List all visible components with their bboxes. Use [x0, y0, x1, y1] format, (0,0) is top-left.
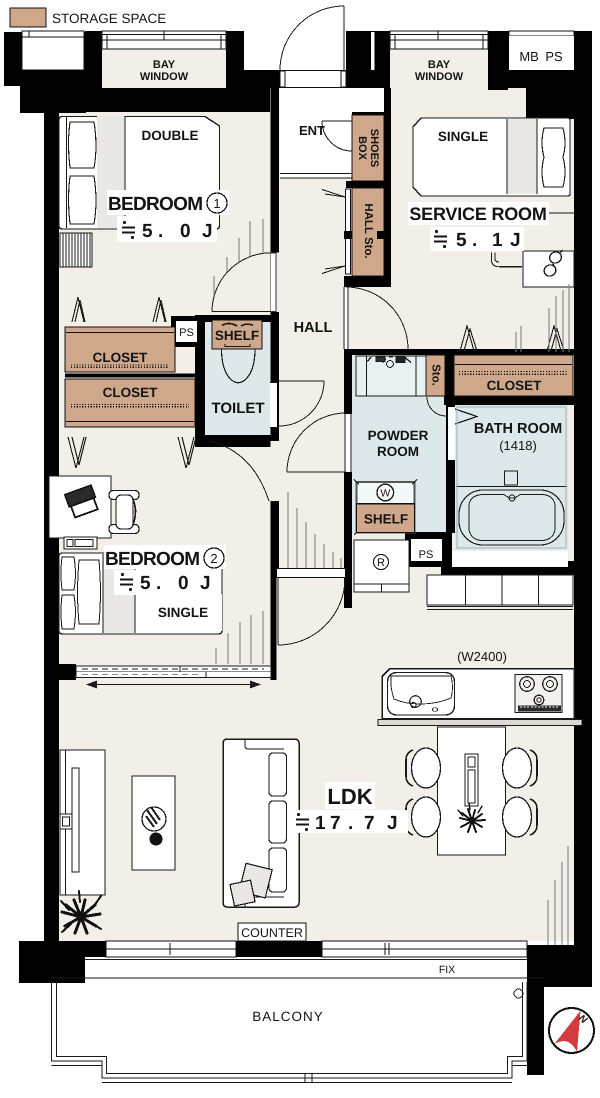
svg-text:SERVICE ROOM: SERVICE ROOM: [409, 204, 546, 224]
svg-text:CLOSET: CLOSET: [487, 378, 543, 393]
svg-text:1: 1: [492, 230, 503, 251]
svg-text:SINGLE: SINGLE: [158, 605, 208, 620]
svg-text:CLOSET: CLOSET: [103, 385, 159, 400]
svg-text:5: 5: [140, 573, 151, 594]
svg-text:PS: PS: [419, 549, 434, 561]
svg-text:(1418): (1418): [499, 438, 537, 453]
svg-text:BAY: BAY: [153, 59, 176, 71]
svg-text:BEDROOM: BEDROOM: [105, 549, 199, 570]
svg-text:HALL Sto.: HALL Sto.: [362, 203, 374, 258]
svg-text:BATH ROOM: BATH ROOM: [474, 421, 562, 437]
svg-text:ROOM: ROOM: [377, 444, 419, 459]
svg-text:POWDER: POWDER: [368, 428, 429, 443]
svg-text:2: 2: [210, 551, 217, 566]
svg-text:1: 1: [213, 196, 220, 211]
svg-text:J: J: [510, 230, 521, 251]
svg-text:ENT: ENT: [299, 123, 325, 138]
svg-text:PS: PS: [179, 327, 194, 339]
svg-text:7: 7: [364, 813, 375, 834]
svg-text:COUNTER: COUNTER: [241, 926, 303, 940]
svg-text:FIX: FIX: [439, 964, 455, 976]
svg-text:W: W: [380, 488, 390, 500]
svg-text:.: .: [472, 230, 477, 251]
svg-text:5: 5: [142, 221, 153, 242]
svg-text:.: .: [158, 221, 163, 242]
svg-text:CLOSET: CLOSET: [93, 350, 149, 365]
svg-text:BAY: BAY: [428, 59, 451, 71]
svg-text:SHELF: SHELF: [215, 328, 259, 343]
svg-text:J: J: [200, 573, 211, 594]
svg-text:WINDOW: WINDOW: [415, 71, 464, 83]
svg-text:DOUBLE: DOUBLE: [142, 128, 199, 143]
svg-text:TOILET: TOILET: [211, 400, 264, 417]
svg-text:J: J: [202, 221, 213, 242]
svg-text:0: 0: [180, 221, 191, 242]
svg-text:SINGLE: SINGLE: [438, 129, 488, 144]
svg-text:BOX: BOX: [356, 136, 368, 161]
svg-text:7: 7: [330, 813, 341, 834]
svg-text:BALCONY: BALCONY: [252, 1009, 324, 1024]
svg-text:Sto.: Sto.: [430, 364, 442, 386]
svg-text:0: 0: [178, 573, 189, 594]
svg-text:STORAGE SPACE: STORAGE SPACE: [52, 11, 166, 26]
svg-text:HALL: HALL: [294, 320, 333, 336]
svg-text:LDK: LDK: [327, 784, 372, 809]
svg-text:WINDOW: WINDOW: [140, 71, 189, 83]
svg-text:BEDROOM: BEDROOM: [108, 194, 202, 215]
svg-text:SHOES: SHOES: [368, 129, 380, 168]
svg-text:.: .: [348, 813, 353, 834]
svg-text:MB PS: MB PS: [519, 49, 563, 64]
svg-text:1: 1: [315, 813, 326, 834]
svg-text:.: .: [156, 573, 161, 594]
svg-text:(W2400): (W2400): [457, 649, 507, 664]
svg-text:R: R: [377, 557, 385, 569]
svg-text:5: 5: [456, 230, 467, 251]
svg-text:J: J: [387, 813, 398, 834]
svg-text:SHELF: SHELF: [364, 512, 408, 527]
